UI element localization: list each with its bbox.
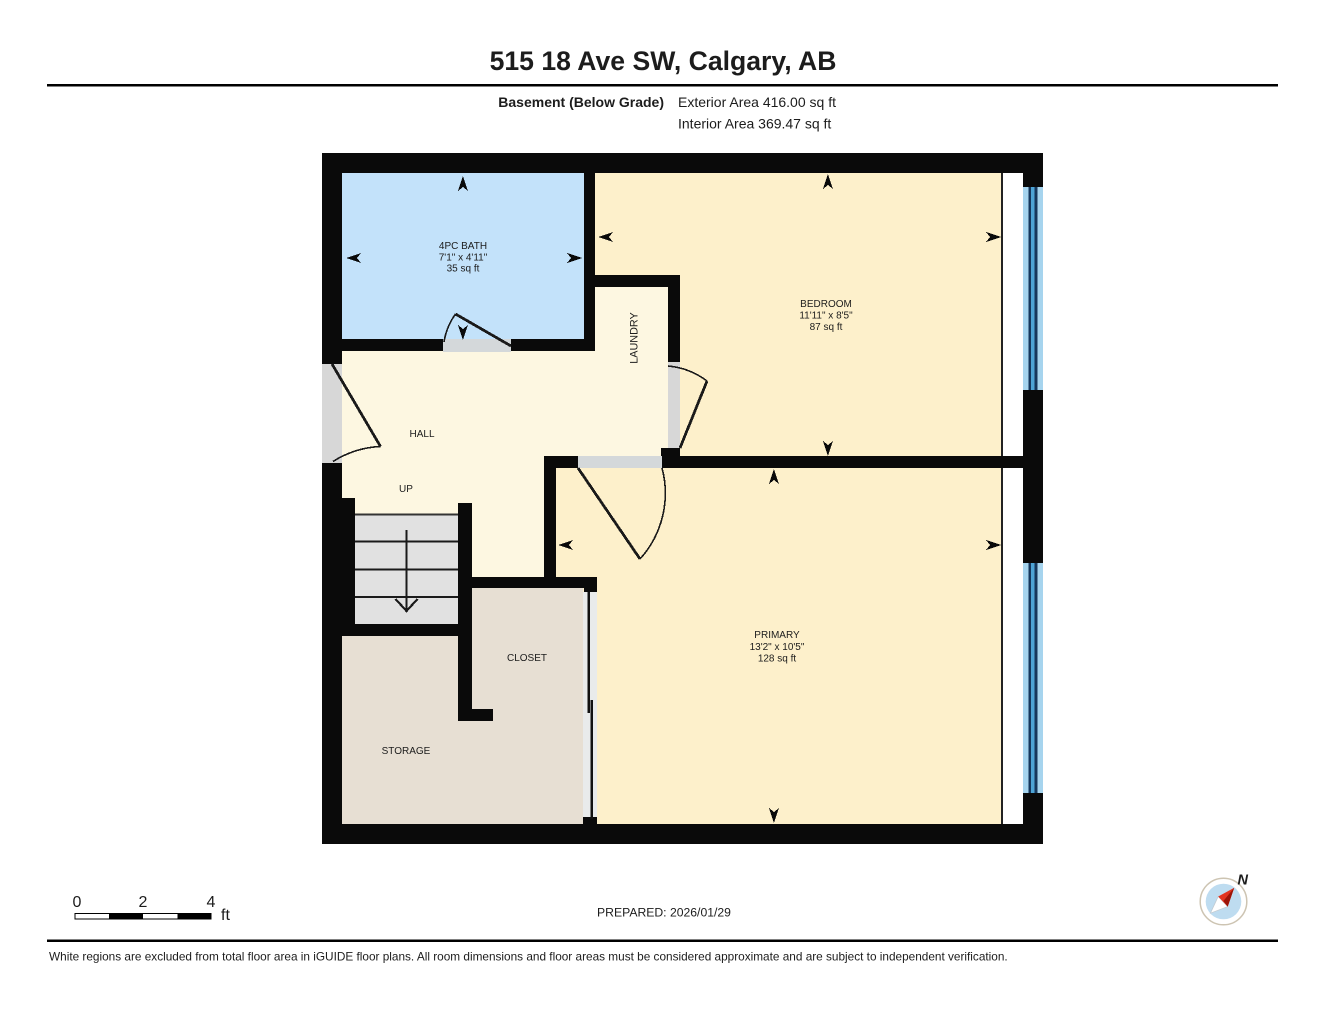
- svg-text:White regions are excluded fro: White regions are excluded from total fl…: [49, 950, 1008, 964]
- svg-text:13'2" x 10'5": 13'2" x 10'5": [750, 642, 805, 653]
- svg-text:BEDROOM: BEDROOM: [800, 299, 852, 310]
- svg-text:CLOSET: CLOSET: [507, 653, 547, 664]
- svg-text:4PC BATH: 4PC BATH: [439, 241, 487, 252]
- svg-text:N: N: [1238, 873, 1249, 889]
- svg-text:87 sq ft: 87 sq ft: [810, 322, 843, 333]
- svg-text:4: 4: [207, 894, 216, 911]
- svg-text:Exterior Area 416.00 sq ft: Exterior Area 416.00 sq ft: [678, 94, 836, 110]
- svg-text:128 sq ft: 128 sq ft: [758, 654, 797, 665]
- svg-text:7'1" x 4'11": 7'1" x 4'11": [439, 253, 488, 264]
- svg-text:Basement (Below Grade): Basement (Below Grade): [498, 94, 664, 110]
- svg-text:LAUNDRY: LAUNDRY: [629, 312, 641, 363]
- svg-text:35 sq ft: 35 sq ft: [447, 264, 480, 275]
- svg-text:515 18 Ave SW, Calgary, AB: 515 18 Ave SW, Calgary, AB: [490, 46, 837, 76]
- svg-text:Interior Area 369.47 sq ft: Interior Area 369.47 sq ft: [678, 116, 831, 132]
- svg-text:PREPARED: 2026/01/29: PREPARED: 2026/01/29: [597, 906, 731, 920]
- svg-text:11'11" x 8'5": 11'11" x 8'5": [799, 311, 853, 322]
- svg-text:UP: UP: [399, 484, 413, 495]
- svg-text:HALL: HALL: [409, 429, 434, 440]
- svg-text:ft: ft: [221, 907, 230, 924]
- svg-text:STORAGE: STORAGE: [382, 746, 431, 757]
- svg-text:0: 0: [73, 894, 82, 911]
- svg-text:PRIMARY: PRIMARY: [754, 630, 800, 641]
- svg-text:2: 2: [139, 894, 148, 911]
